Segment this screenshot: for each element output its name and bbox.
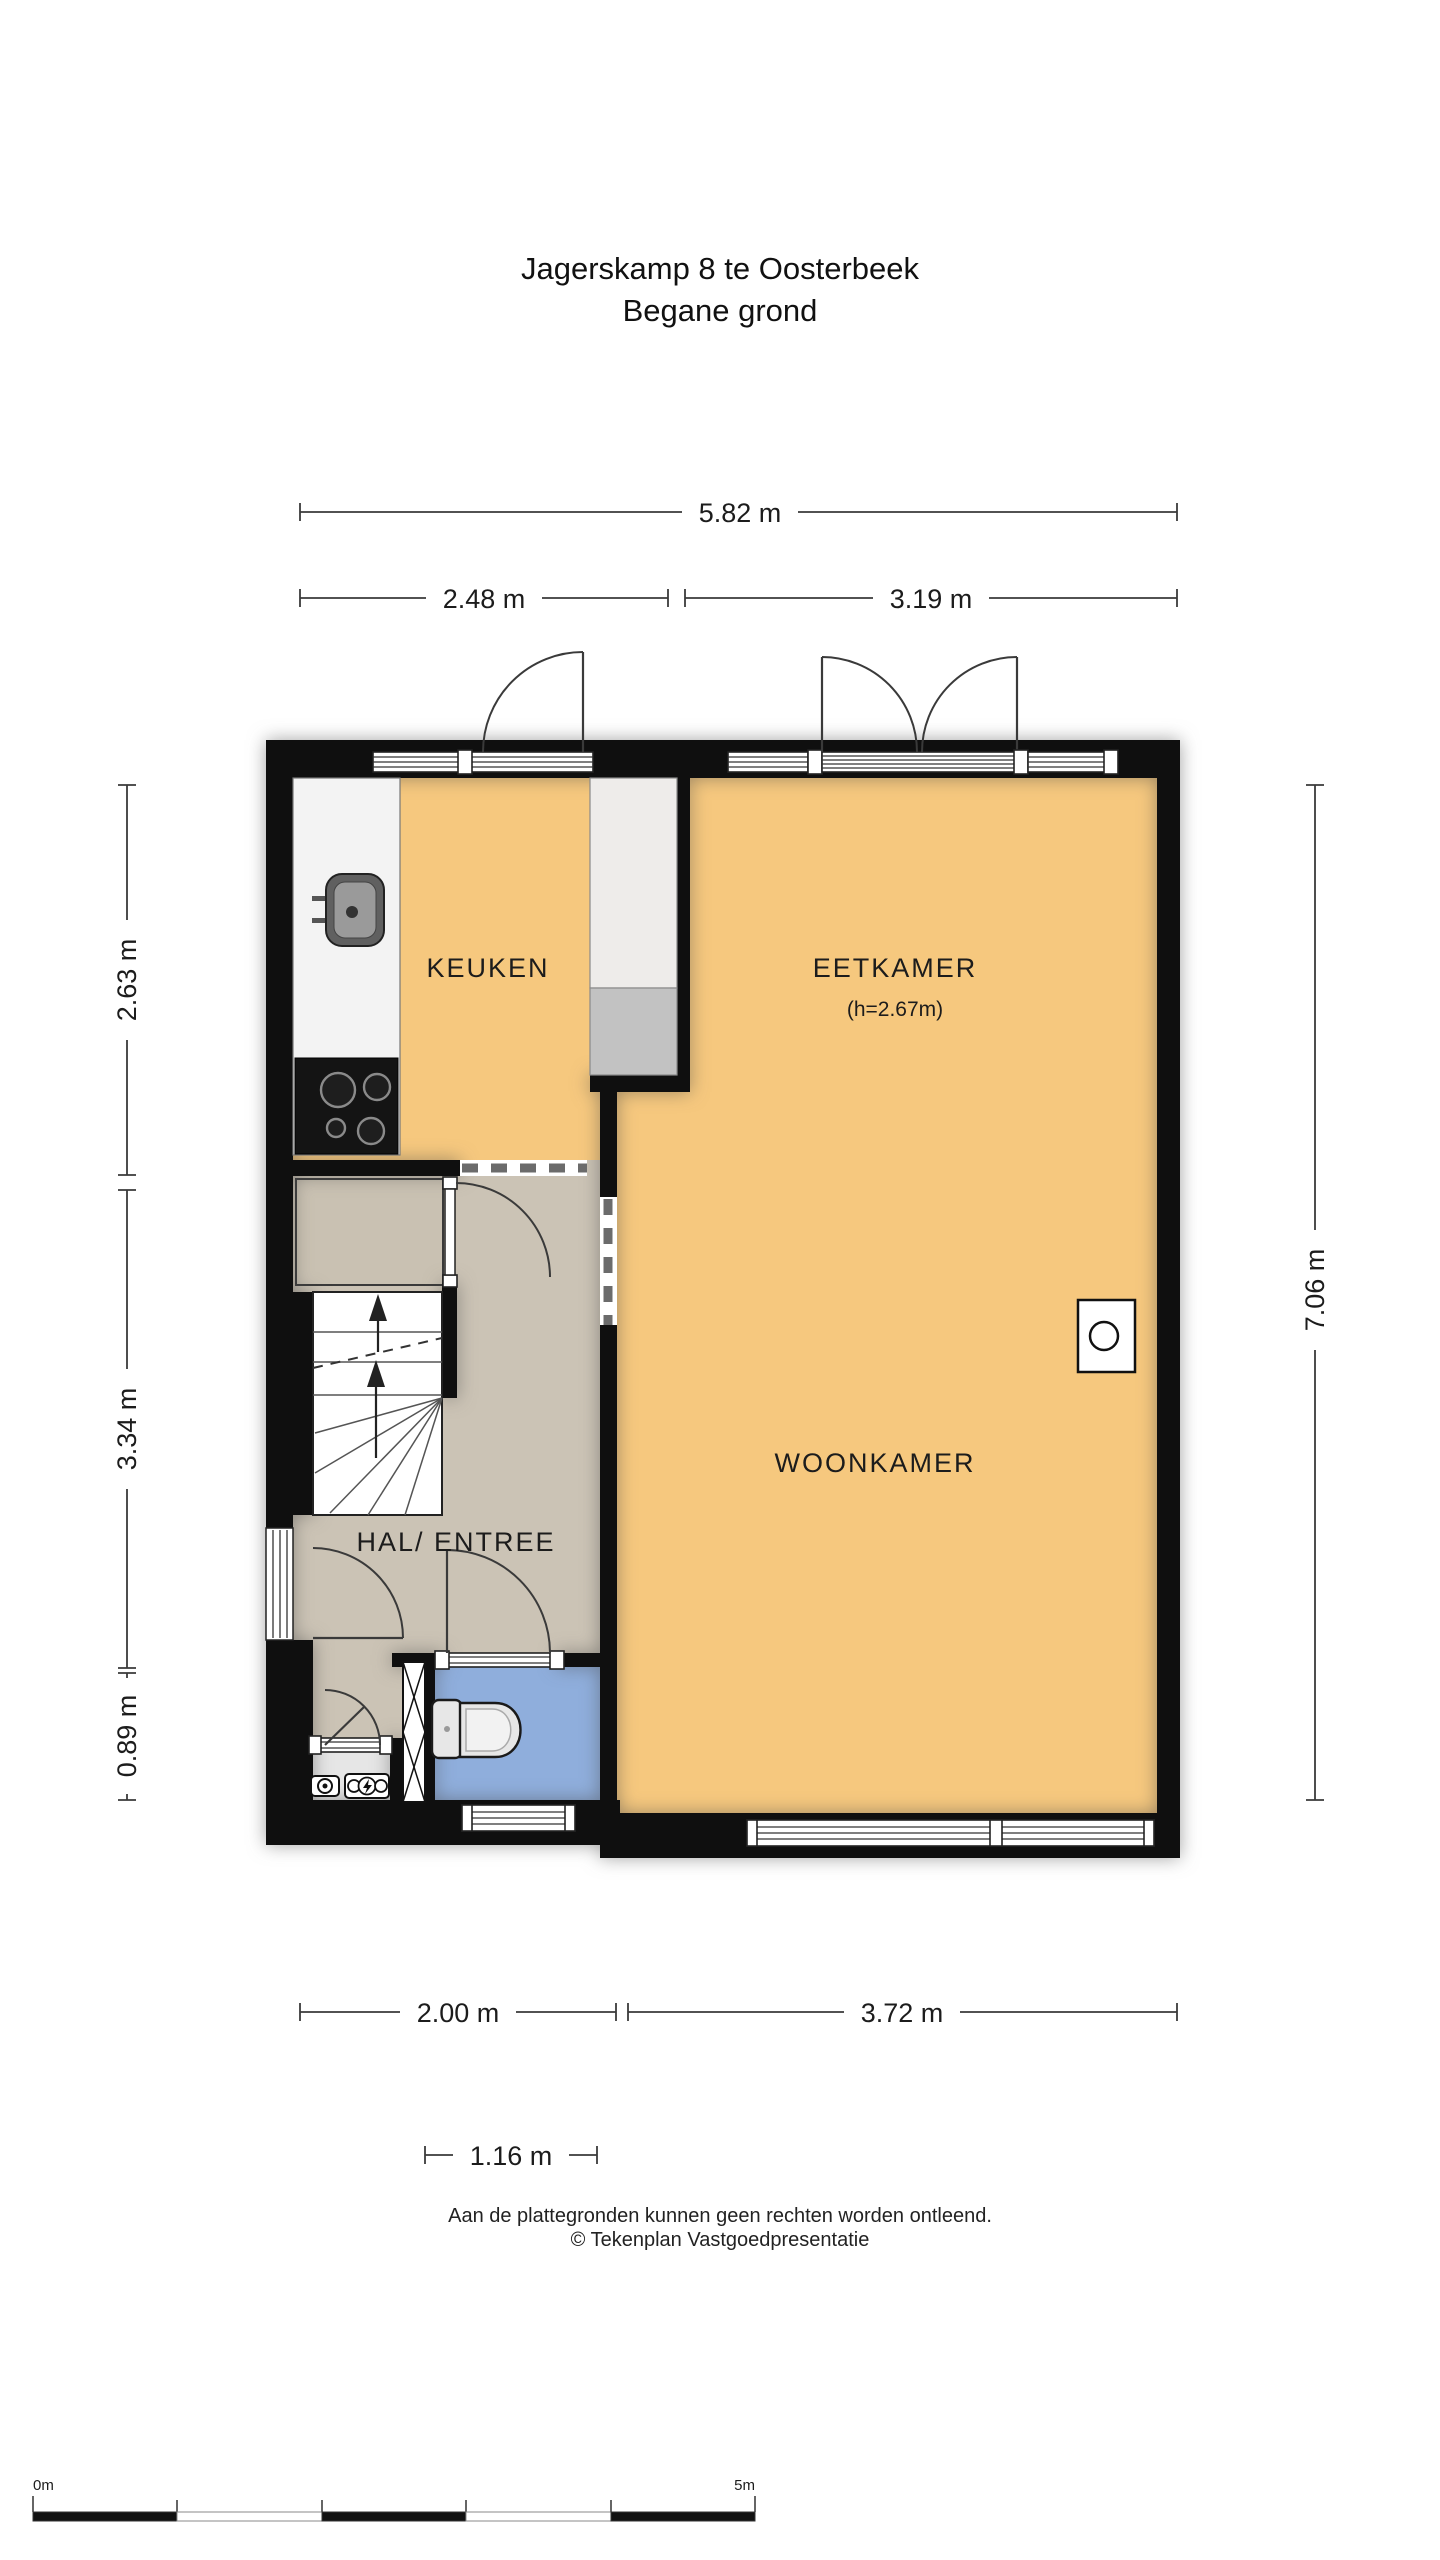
closet [296, 1179, 443, 1285]
label-dining: EETKAMER [813, 953, 978, 983]
kitchen-window-mullion [458, 750, 472, 774]
kitchen-backdoor-swing [483, 652, 583, 752]
dim-left-middle: 3.34 m [112, 1388, 142, 1471]
scale-bar: 0m 5m [33, 2477, 755, 2521]
dim-bottom-left: 2.00 m [417, 1998, 500, 2028]
wc-seat [466, 1709, 511, 1751]
wall-right [1157, 740, 1180, 1858]
dim-right-total: 7.06 m [1300, 1249, 1330, 1332]
jamb [808, 750, 822, 774]
wall-column-right [677, 740, 690, 1092]
wall-entry-left [293, 1640, 313, 1800]
wc-button [444, 1726, 450, 1732]
dim-left-top: 2.63 m [112, 939, 142, 1022]
dim-bottom-inner: 1.16 m [470, 2141, 553, 2171]
duct-shaft [403, 1662, 425, 1802]
french-door-right-swing [922, 657, 1017, 752]
tall-cabinet-lower [590, 988, 677, 1075]
dim-bottom-right: 3.72 m [861, 1998, 944, 2028]
scale-end-label: 5m [734, 2477, 755, 2494]
scale-start-label: 0m [33, 2477, 54, 2494]
living-dining-floor [617, 768, 1157, 1820]
floorplan-page: Jagerskamp 8 te Oosterbeek Begane grond [0, 0, 1440, 2560]
wall-stairs-right [442, 1283, 457, 1398]
faucet-icon [312, 896, 326, 901]
label-kitchen: KEUKEN [426, 953, 549, 983]
wc-fixture [432, 1700, 521, 1758]
meter-icons [311, 1774, 389, 1798]
fireplace [1078, 1300, 1135, 1372]
copyright-text: © Tekenplan Vastgoedpresentatie [0, 2228, 1440, 2252]
dim-left-bottom: 0.89 m [112, 1695, 142, 1778]
label-hall: HAL/ ENTREE [356, 1527, 555, 1557]
burner [358, 1118, 384, 1144]
disclaimer-text: Aan de plattegronden kunnen geen rechten… [0, 2204, 1440, 2228]
jamb [1104, 750, 1118, 774]
burner [327, 1119, 345, 1137]
staircase [313, 1292, 442, 1515]
faucet-icon [312, 918, 326, 923]
french-door-left-swing [822, 657, 917, 752]
living-window-mullion [990, 1820, 1002, 1846]
meter-dial-icon [375, 1780, 387, 1792]
footer: Aan de plattegronden kunnen geen rechten… [0, 2204, 1440, 2252]
wall-stairs-left [293, 1292, 313, 1515]
label-living: WOONKAMER [774, 1448, 975, 1478]
label-dining-height: (h=2.67m) [847, 998, 943, 1021]
floor-plan: KEUKEN EETKAMER (h=2.67m) WOONKAMER HAL/… [0, 0, 1440, 2560]
burner [321, 1073, 355, 1107]
toilet-door-threshold [443, 1653, 557, 1667]
dim-top-right: 3.19 m [890, 584, 973, 614]
top-openings [373, 652, 1118, 774]
jamb [1014, 750, 1028, 774]
french-doors-threshold [822, 752, 1017, 772]
wall-kitchen-hall [293, 1160, 460, 1176]
dim-top-left: 2.48 m [443, 584, 526, 614]
closet-door-leaf [445, 1189, 455, 1275]
wall-left [266, 740, 293, 1845]
dim-top-total: 5.82 m [699, 498, 782, 528]
burner [364, 1074, 390, 1100]
tall-cabinet [590, 778, 677, 988]
sink-drain [346, 906, 358, 918]
wall-column-bottom [590, 1075, 690, 1092]
